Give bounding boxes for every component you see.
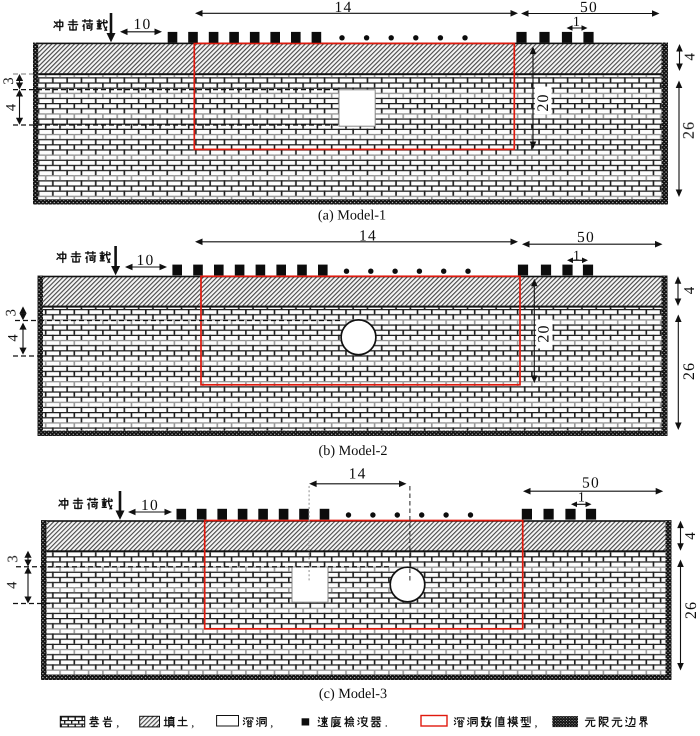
svg-text:(b) Model-2: (b) Model-2	[319, 443, 388, 459]
svg-text:3: 3	[3, 309, 19, 316]
svg-text:4: 4	[683, 532, 699, 540]
svg-text:20: 20	[536, 324, 553, 342]
svg-text:14: 14	[359, 228, 377, 245]
svg-text:50: 50	[582, 475, 600, 492]
svg-text:10: 10	[134, 16, 152, 33]
svg-text:4: 4	[4, 103, 20, 111]
svg-text:,: ,	[191, 716, 194, 730]
svg-text:3: 3	[5, 555, 21, 562]
svg-text:,: ,	[116, 716, 119, 730]
svg-text:(a) Model-1: (a) Model-1	[318, 208, 386, 224]
svg-text:,: ,	[535, 716, 538, 730]
svg-text:14: 14	[349, 466, 367, 483]
svg-text:14: 14	[335, 0, 353, 16]
svg-text:50: 50	[580, 0, 598, 16]
svg-text:26: 26	[681, 121, 698, 139]
svg-text:(c) Model-3: (c) Model-3	[319, 686, 387, 702]
svg-text:3: 3	[1, 77, 17, 84]
svg-text:50: 50	[577, 229, 595, 246]
svg-text:4: 4	[4, 581, 20, 589]
svg-text:4: 4	[6, 334, 22, 342]
svg-text:26: 26	[683, 601, 700, 619]
svg-text:1: 1	[578, 491, 585, 506]
svg-text:4: 4	[682, 53, 698, 61]
svg-text:.: .	[385, 716, 388, 730]
svg-text:1: 1	[573, 249, 580, 264]
svg-text:4: 4	[682, 286, 698, 294]
svg-text:1: 1	[573, 15, 580, 30]
svg-text:,: ,	[270, 716, 273, 730]
svg-text:26: 26	[681, 362, 698, 380]
svg-text:20: 20	[535, 93, 552, 111]
svg-text:10: 10	[141, 497, 159, 514]
svg-text:10: 10	[137, 252, 155, 269]
